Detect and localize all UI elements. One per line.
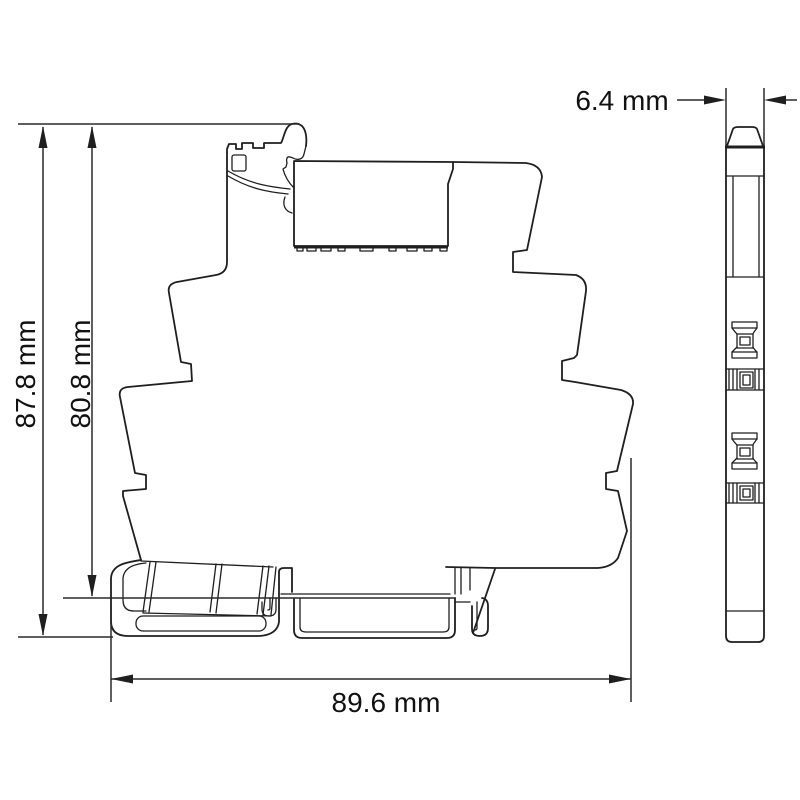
release-clip-and-left-profile: [111, 124, 306, 636]
arrowhead-right: [609, 675, 631, 684]
edge-top-dome: [727, 127, 763, 146]
mounting-foot-spring: [123, 561, 276, 631]
dimension-label-depth: 89.6 mm: [332, 687, 441, 718]
clip-spring-curve-1: [228, 171, 290, 189]
relay-block-outline: [294, 161, 453, 246]
arrowhead-left: [111, 675, 133, 684]
dimension-width: 6.4 mm: [575, 85, 797, 146]
dimension-depth: 89.6 mm: [111, 458, 631, 718]
technical-dimension-drawing: 87.8 mm 80.8 mm 89.6 mm 6.4 mm: [0, 0, 800, 800]
dimension-label-height-above-rail: 80.8 mm: [65, 320, 96, 429]
arrowhead-down: [88, 575, 97, 597]
arrowhead-up: [39, 126, 48, 148]
edge-upper-panel: [726, 176, 764, 277]
module-outline-right: [446, 162, 633, 568]
edge-terminal-lower: [726, 483, 764, 503]
arrowhead-up: [88, 126, 97, 148]
clip-spring-curve-2: [228, 176, 288, 194]
dimension-height-above-rail: 80.8 mm: [65, 126, 97, 597]
edge-view: [725, 127, 765, 642]
dimension-label-total-height: 87.8 mm: [10, 320, 41, 429]
rail-channel-inner: [300, 599, 449, 632]
clip-hole: [232, 155, 246, 171]
edge-body-outline: [726, 147, 764, 642]
arrowhead-right: [704, 96, 726, 105]
relay-block: [294, 161, 453, 251]
clip-spring-curl: [284, 197, 292, 213]
arrowhead-down: [39, 614, 48, 636]
arrowhead-left: [764, 96, 786, 105]
din-rail-profile: [63, 594, 488, 638]
main-side-view: [63, 124, 633, 638]
rail-left-lip-inner: [268, 598, 270, 610]
dimension-total-height: 87.8 mm: [10, 124, 299, 637]
module-outline-left: [111, 124, 306, 636]
edge-terminal-upper: [726, 369, 764, 390]
fixed-claw: [455, 567, 495, 633]
dimension-label-width: 6.4 mm: [575, 85, 668, 116]
edge-clamp-upper: [732, 322, 757, 358]
edge-clamp-lower: [732, 433, 757, 469]
